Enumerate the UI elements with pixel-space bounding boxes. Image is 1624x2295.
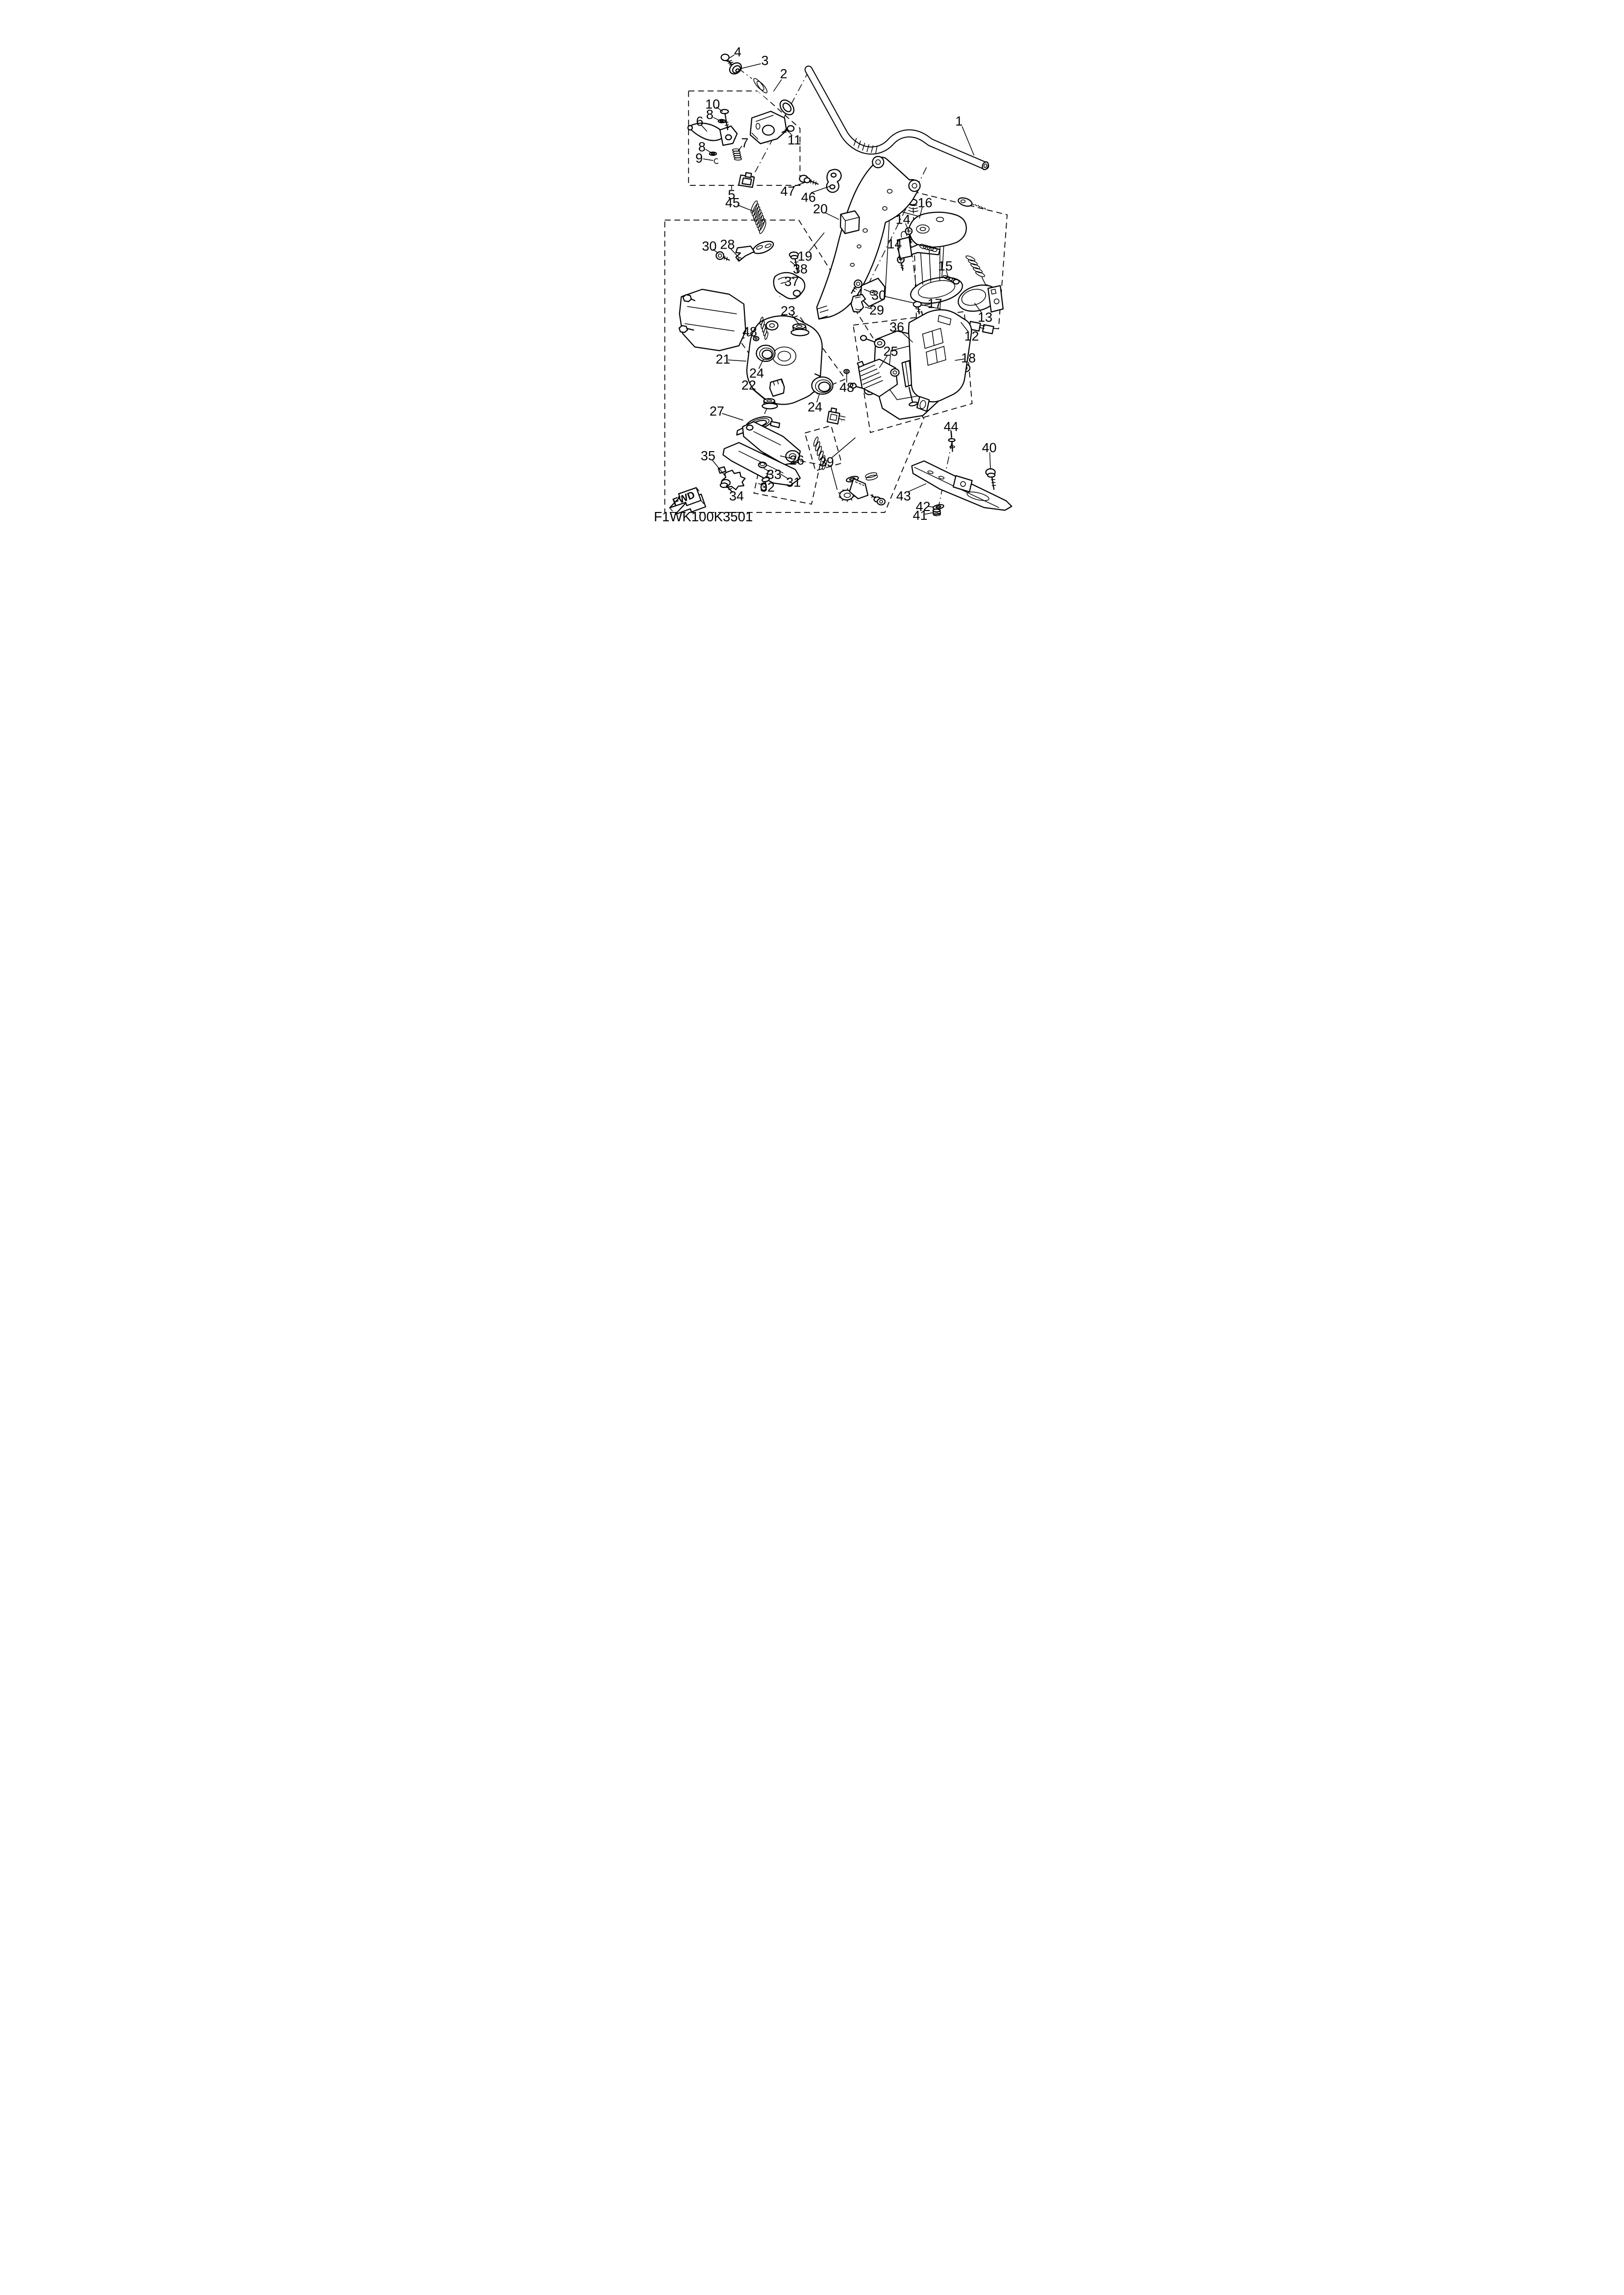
callout-label-46: 46 (801, 190, 816, 205)
callout-label-17: 17 (927, 296, 942, 311)
callout-2: 2 (774, 67, 787, 92)
callout-label-24b: 24 (808, 400, 822, 414)
callout-label-24a: 24 (749, 366, 764, 381)
spring-7 (733, 149, 742, 160)
callout-3: 3 (740, 53, 769, 69)
callout-label-3: 3 (761, 53, 768, 68)
gear-housing-21 (747, 316, 825, 404)
callout-label-23: 23 (781, 304, 795, 318)
callout-40: 40 (982, 440, 996, 470)
callout-10: 10 (705, 97, 723, 112)
drawing-code: F1WK100K3501 (654, 509, 753, 524)
callout-label-14b: 14 (887, 237, 902, 252)
bolt-40 (986, 469, 996, 489)
callout-label-47: 47 (780, 184, 795, 199)
holder-cube-20 (840, 211, 860, 233)
callout-label-4: 4 (734, 45, 741, 59)
callout-label-35: 35 (701, 449, 715, 463)
callout-label-21: 21 (715, 352, 730, 367)
callout-leader-27 (722, 413, 743, 420)
callout-label-48b: 48 (839, 380, 854, 395)
callout-label-30b: 30 (871, 288, 886, 303)
callout-48b: 48 (839, 374, 854, 395)
callout-label-44: 44 (943, 419, 958, 434)
callout-label-33: 33 (767, 467, 782, 482)
callout-34: 34 (728, 488, 744, 504)
callout-label-40: 40 (982, 440, 996, 455)
seal-24a (757, 345, 775, 361)
grip-group (721, 54, 797, 118)
callout-label-18: 18 (961, 351, 976, 365)
callout-label-11: 11 (787, 133, 801, 148)
mount-block (679, 289, 746, 351)
clamp-46 (827, 170, 841, 193)
callout-label-15: 15 (938, 259, 953, 274)
cable-screw (871, 495, 886, 505)
callout-leader-8b (706, 150, 712, 153)
callout-label-28: 28 (720, 237, 735, 252)
callout-label-29: 29 (869, 303, 884, 318)
callout-label-2: 2 (780, 67, 787, 81)
callout-1: 1 (955, 114, 974, 155)
gear-housing-group (679, 289, 825, 435)
callout-32: 32 (759, 480, 775, 495)
callout-label-26: 26 (789, 453, 804, 468)
callout-label-9: 9 (695, 151, 703, 166)
callout-label-39: 39 (819, 455, 834, 469)
column-ear-hole (872, 156, 884, 168)
callout-label-7: 7 (741, 135, 748, 150)
callout-42: 42 (915, 499, 933, 514)
callout-label-16: 16 (917, 196, 932, 210)
parts-diagram: FWD F1WK100K3501 12345678891011121314141… (609, 0, 1015, 574)
callout-30a: 30 (702, 239, 718, 254)
callout-label-32: 32 (760, 480, 775, 495)
lock-spring (965, 255, 988, 288)
callout-19: 19 (797, 233, 824, 264)
column-ear-hole-2 (909, 180, 920, 191)
callout-20: 20 (813, 202, 839, 220)
callout-24b: 24 (808, 393, 822, 414)
callout-label-38: 38 (793, 262, 808, 277)
callout-label-34: 34 (729, 489, 744, 504)
callout-label-13: 13 (978, 310, 992, 325)
spring-45 (750, 200, 767, 234)
screw-17 (913, 302, 921, 314)
callout-38: 38 (790, 261, 808, 277)
callout-label-25: 25 (883, 344, 898, 359)
callout-label-48a: 48 (742, 325, 757, 339)
callout-21: 21 (715, 352, 746, 367)
callout-leader-9 (703, 159, 713, 160)
nut-33 (759, 462, 766, 468)
seal-24b (812, 377, 833, 394)
callout-label-6: 6 (696, 114, 703, 129)
callout-label-36: 36 (889, 320, 904, 334)
grommet-48b (844, 370, 849, 374)
callout-leader-8a (713, 118, 721, 121)
callout-label-14a: 14 (895, 212, 910, 227)
callout-leader-21 (728, 360, 746, 361)
callout-27: 27 (710, 404, 743, 421)
callout-label-37: 37 (784, 274, 799, 289)
callout-11: 11 (787, 130, 801, 148)
callout-4: 4 (729, 45, 741, 59)
callout-label-19: 19 (797, 249, 812, 264)
nut-41 (933, 509, 940, 516)
callout-7: 7 (738, 135, 749, 151)
callout-label-30a: 30 (702, 239, 716, 254)
cable-39-group (827, 408, 885, 505)
callout-leader-2 (774, 79, 782, 91)
switch-housing (750, 111, 787, 144)
callout-label-12: 12 (964, 329, 979, 344)
callout-leader-1 (962, 127, 974, 156)
callout-leader-39 (831, 438, 856, 459)
callout-45: 45 (725, 196, 753, 211)
callout-leader-3 (740, 64, 761, 69)
callout-label-27: 27 (710, 404, 724, 419)
callout-35: 35 (701, 449, 726, 477)
key-lever (957, 196, 986, 209)
callout-label-45: 45 (725, 196, 740, 210)
clip-9 (714, 159, 718, 164)
cable-end-cylinder (865, 461, 878, 482)
callout-48a: 48 (742, 325, 757, 339)
callout-label-42: 42 (915, 499, 930, 514)
bracket-28 (736, 239, 775, 261)
callout-label-31: 31 (786, 475, 801, 490)
callout-14b: 14 (887, 237, 902, 259)
callout-label-10: 10 (705, 97, 720, 112)
grip-2 (752, 77, 797, 117)
callout-label-1: 1 (955, 114, 963, 128)
callout-label-43: 43 (896, 488, 911, 503)
diagram-sheet: FWD F1WK100K3501 12345678891011121314141… (609, 0, 1015, 574)
